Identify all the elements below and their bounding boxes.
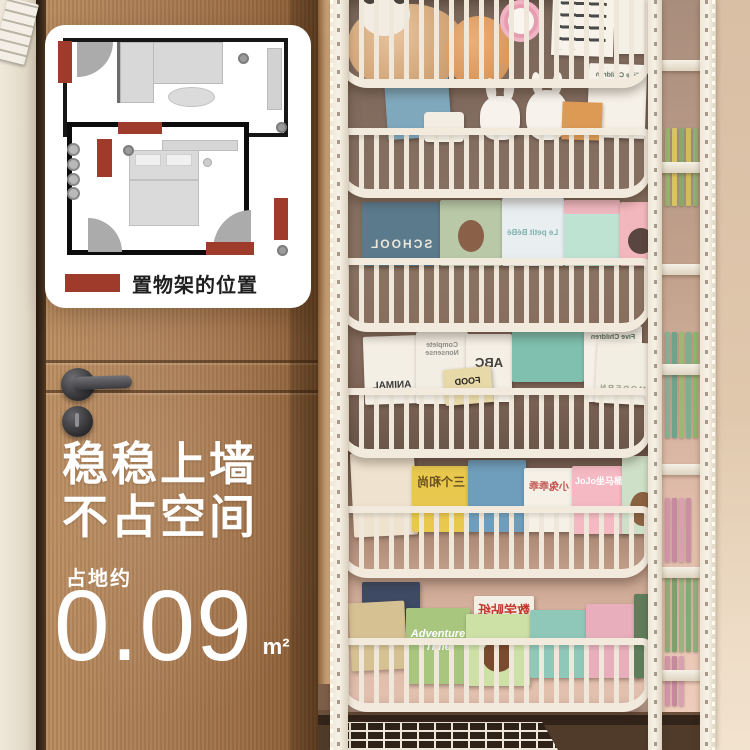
side-shelf-slat [656, 670, 702, 681]
side-shelf-slat [656, 464, 702, 475]
cover-illustration [564, 200, 620, 214]
shelf-position-marker [274, 198, 288, 240]
floorplan-pillow [135, 154, 161, 166]
area-unit: m² [263, 634, 290, 660]
floorplan-rug [168, 87, 215, 107]
book-spine [679, 498, 684, 562]
wire-basket [338, 258, 652, 332]
shelf-position-marker [118, 122, 162, 134]
side-shelf-slat [656, 162, 702, 173]
perforation-strip [705, 0, 708, 750]
book-spine [693, 574, 698, 652]
book [512, 328, 584, 382]
floorplan-sofa-chaise [120, 42, 154, 103]
floorplan-knob [67, 158, 80, 171]
shelf-position-marker [58, 41, 72, 83]
legend-label: 置物架的位置 [132, 269, 258, 298]
shelf-position-marker [206, 242, 254, 255]
wire-basket [338, 388, 652, 458]
light-strip [712, 0, 715, 750]
floorplan-knob [67, 173, 80, 186]
book-spine [665, 498, 670, 562]
book-spine [665, 656, 670, 706]
floorplan-lamp [203, 158, 212, 167]
book-spine [672, 498, 677, 562]
book-spine [672, 656, 677, 706]
book-spine [672, 332, 677, 438]
keyhole-slot [75, 413, 79, 427]
book-spine [672, 574, 677, 652]
area-value: 0.09 [54, 576, 253, 676]
headline-line2: 不占空间 [62, 491, 258, 544]
floorplan-card: 置物架的位置 [45, 25, 311, 308]
wire-basket [338, 0, 652, 88]
door-groove [46, 360, 318, 363]
floorplan-screw [277, 245, 288, 256]
book: Le petit BéBé [502, 198, 564, 266]
perforation-strip [337, 0, 340, 750]
book-spine [665, 332, 670, 438]
floorplan-bed [129, 150, 199, 226]
side-shelf-slat [656, 567, 702, 578]
door-handle-icon [74, 375, 132, 390]
area-figure: 0.09 m² [54, 576, 290, 676]
book-spine [686, 332, 691, 438]
book-spine [686, 574, 691, 652]
book-spine [679, 332, 684, 438]
cover-illustration [458, 220, 484, 252]
floorplan-legend: 置物架的位置 [65, 271, 295, 295]
headline-line1: 稳稳上墙 [62, 438, 258, 491]
wire-basket [338, 128, 652, 198]
grid-mat [332, 722, 558, 750]
floorplan-bed-fold [130, 179, 198, 181]
floorplan-knob [67, 187, 80, 200]
book-spine [693, 332, 698, 438]
left-wall [0, 0, 36, 750]
side-shelf-slat [656, 364, 702, 375]
book-spine [679, 656, 684, 706]
book: SCHOOL [362, 202, 440, 266]
headline: 稳稳上墙 不占空间 [62, 438, 258, 545]
floorplan-screw [276, 122, 287, 133]
floorplan-knob [67, 143, 80, 156]
light-strip [330, 0, 333, 750]
legend-swatch [65, 274, 120, 292]
book-spine [686, 498, 691, 562]
floorplan-screw [123, 145, 134, 156]
floorplan-tv-cabinet [267, 48, 282, 110]
perforation-strip [654, 0, 657, 750]
floorplan-screw [238, 53, 249, 64]
book-spine [679, 574, 684, 652]
wire-basket [338, 638, 652, 712]
product-image: Five Children and ItSCHOOLLe petit BéBéA… [0, 0, 750, 750]
floorplan [63, 38, 288, 255]
side-shelf-slat [656, 60, 702, 71]
book [440, 200, 502, 266]
side-shelf-slat [656, 264, 702, 275]
book [564, 200, 620, 266]
shelf-position-marker [97, 139, 112, 177]
wire-basket [338, 506, 652, 578]
book-spine [665, 574, 670, 652]
floorplan-pillow [166, 154, 192, 166]
